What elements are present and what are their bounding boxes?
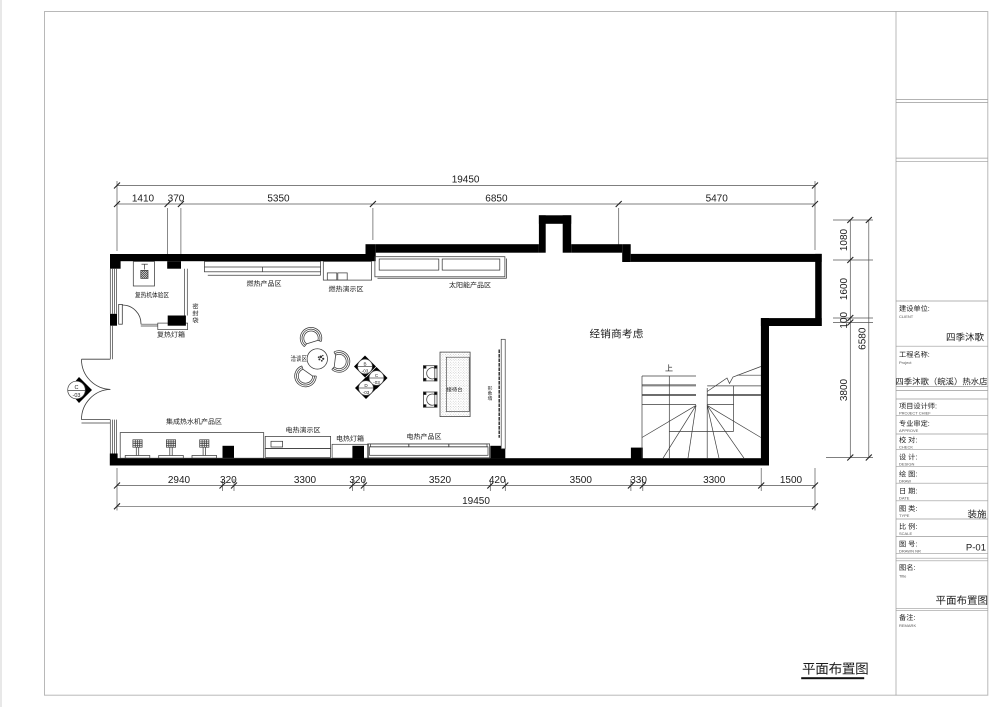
svg-text:5350: 5350	[267, 193, 290, 204]
svg-text:3520: 3520	[429, 475, 452, 486]
svg-text:420: 420	[489, 475, 506, 486]
svg-text:DESIGN: DESIGN	[899, 462, 914, 467]
svg-text:3300: 3300	[294, 475, 317, 486]
svg-text:绘 图:: 绘 图:	[899, 470, 917, 479]
svg-text:B: B	[363, 361, 366, 366]
svg-text:平面布置图: 平面布置图	[936, 595, 989, 607]
svg-text:工程名称:: 工程名称:	[899, 350, 930, 359]
svg-text:专业审定:: 专业审定:	[899, 419, 930, 428]
svg-text:370: 370	[168, 193, 185, 204]
svg-text:3500: 3500	[570, 475, 593, 486]
svg-text:图 号:: 图 号:	[899, 540, 917, 549]
svg-text:19450: 19450	[462, 496, 490, 507]
svg-text:电热产品区: 电热产品区	[407, 433, 442, 441]
svg-text:APPROVE: APPROVE	[899, 428, 919, 433]
svg-text:电热灯箱: 电热灯箱	[336, 435, 364, 443]
svg-text:象: 象	[488, 390, 493, 397]
svg-text:校 对:: 校 对:	[899, 436, 917, 445]
svg-text:320: 320	[220, 475, 237, 486]
svg-text:320: 320	[349, 475, 366, 486]
svg-text:TYPE: TYPE	[899, 513, 910, 518]
svg-text:1410: 1410	[132, 193, 155, 204]
svg-text:经销商考虑: 经销商考虑	[590, 329, 644, 341]
svg-text:电热演示区: 电热演示区	[286, 426, 321, 434]
svg-text:燃热产品区: 燃热产品区	[247, 280, 282, 288]
svg-text:SCALE: SCALE	[899, 531, 912, 536]
svg-text:-03: -03	[373, 380, 380, 385]
svg-text:P-01: P-01	[966, 543, 986, 554]
svg-text:DATE: DATE	[899, 496, 910, 501]
svg-text:密: 密	[192, 303, 198, 311]
svg-text:太阳能产品区: 太阳能产品区	[449, 282, 491, 290]
svg-text:1080: 1080	[839, 228, 850, 251]
svg-text:2940: 2940	[168, 475, 191, 486]
svg-text:C: C	[75, 385, 79, 391]
svg-text:洽谈区: 洽谈区	[291, 355, 308, 363]
svg-text:封: 封	[192, 310, 198, 318]
svg-text:6580: 6580	[858, 327, 869, 350]
svg-text:-03: -03	[362, 369, 369, 374]
svg-text:3300: 3300	[703, 475, 726, 486]
svg-text:接待台: 接待台	[447, 386, 463, 393]
svg-text:PROJECT CHIEF: PROJECT CHIEF	[899, 411, 931, 416]
svg-text:CHECK: CHECK	[899, 445, 913, 450]
svg-text:复热机体验区: 复热机体验区	[135, 292, 169, 300]
svg-text:燃热演示区: 燃热演示区	[329, 286, 364, 294]
svg-text:设 计:: 设 计:	[899, 453, 917, 462]
svg-text:6850: 6850	[485, 193, 508, 204]
svg-text:Title: Title	[899, 574, 907, 579]
svg-text:上: 上	[665, 364, 673, 373]
svg-text:比 例:: 比 例:	[899, 522, 917, 531]
svg-text:100: 100	[839, 312, 850, 329]
svg-text:3800: 3800	[839, 378, 850, 401]
svg-text:5470: 5470	[706, 193, 729, 204]
svg-text:装施: 装施	[967, 510, 987, 521]
svg-text:图 类:: 图 类:	[899, 504, 917, 513]
svg-text:项目设计师:: 项目设计师:	[899, 402, 937, 411]
svg-text:Project: Project	[899, 360, 912, 365]
svg-text:-03: -03	[363, 390, 370, 395]
svg-text:复热灯箱: 复热灯箱	[157, 331, 185, 339]
svg-text:图名:: 图名:	[899, 563, 915, 572]
svg-text:日 期:: 日 期:	[899, 487, 917, 496]
svg-text:1500: 1500	[780, 475, 803, 486]
svg-text:DRAWN NR: DRAWN NR	[899, 549, 921, 554]
svg-text:1600: 1600	[839, 277, 850, 300]
svg-text:平面布置图: 平面布置图	[802, 662, 868, 677]
svg-text:REMARK: REMARK	[899, 623, 916, 628]
svg-text:19450: 19450	[452, 174, 480, 185]
svg-text:袋: 袋	[192, 317, 198, 325]
svg-text:CLIENT: CLIENT	[899, 314, 914, 319]
svg-text:-03: -03	[73, 393, 81, 399]
svg-text:建设单位:: 建设单位:	[899, 304, 930, 313]
svg-text:四季沐歌: 四季沐歌	[946, 333, 985, 344]
svg-text:集成热水机产品区: 集成热水机产品区	[166, 418, 222, 426]
svg-text:备注:: 备注:	[899, 613, 915, 622]
svg-text:墙: 墙	[488, 395, 493, 402]
svg-text:四季沐歌（皖溪）热水店: 四季沐歌（皖溪）热水店	[895, 377, 987, 387]
svg-text:DRAW: DRAW	[899, 479, 911, 484]
svg-text:330: 330	[630, 475, 647, 486]
